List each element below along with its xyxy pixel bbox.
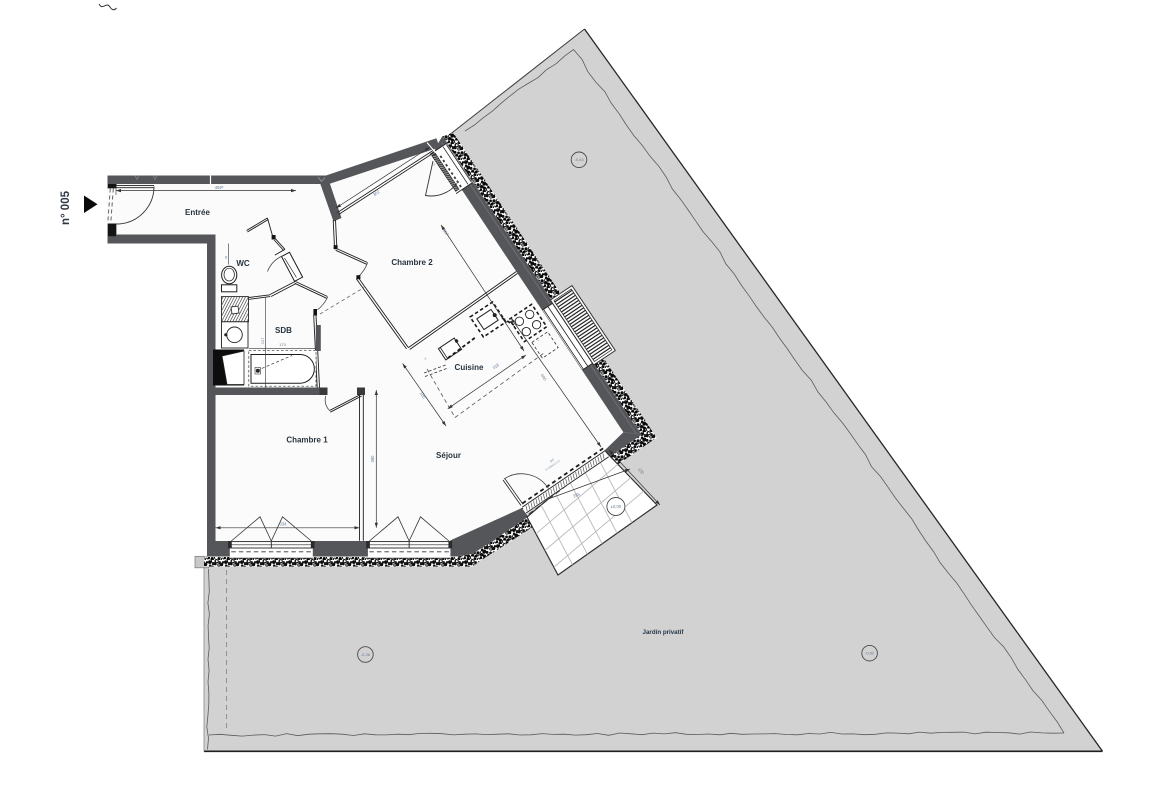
svg-text:-0,36: -0,36	[361, 652, 371, 657]
svg-text:334: 334	[280, 521, 288, 526]
svg-text:Séjour: Séjour	[436, 451, 461, 460]
svg-text:Jardin privatif: Jardin privatif	[643, 629, 685, 636]
svg-text:Chambre 1: Chambre 1	[286, 436, 328, 445]
svg-text:n° 005: n° 005	[60, 190, 72, 225]
svg-text:SDB: SDB	[275, 326, 292, 335]
svg-text:92: 92	[224, 255, 228, 259]
svg-text:Chambre 2: Chambre 2	[391, 258, 433, 267]
svg-text:-0,52: -0,52	[865, 651, 875, 656]
svg-text:Entrée: Entrée	[185, 208, 210, 217]
svg-text:217: 217	[260, 337, 265, 344]
svg-text:±0,00: ±0,00	[611, 504, 622, 509]
svg-text:-0,43: -0,43	[574, 157, 584, 162]
svg-text:380: 380	[370, 455, 375, 463]
svg-text:170: 170	[279, 342, 286, 347]
svg-text:Cuisine: Cuisine	[455, 363, 484, 372]
svg-text:WC: WC	[236, 259, 250, 268]
